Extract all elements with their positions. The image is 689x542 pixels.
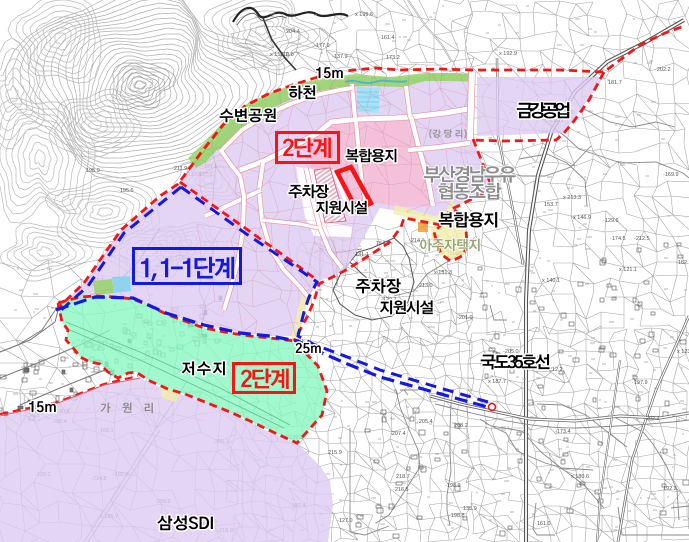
svg-text:-137.9: -137.9: [332, 54, 348, 60]
svg-text:x 180.6: x 180.6: [571, 474, 589, 480]
svg-text:135.9: 135.9: [463, 506, 477, 512]
svg-text:·216.5: ·216.5: [393, 487, 409, 493]
svg-text:x 199.6: x 199.6: [355, 12, 373, 18]
svg-text:x 187.7: x 187.7: [488, 379, 506, 385]
svg-text:x 146.9: x 146.9: [573, 215, 591, 221]
svg-text:-198.9: -198.9: [445, 483, 461, 489]
svg-text:·202.2: ·202.2: [644, 416, 660, 422]
svg-text:·162.2: ·162.2: [676, 260, 689, 266]
svg-text:-177.0: -177.0: [314, 43, 330, 49]
svg-text:·197.9: ·197.9: [632, 380, 648, 386]
svg-text:x 140.1: x 140.1: [542, 278, 560, 284]
svg-text:195.9: 195.9: [86, 168, 100, 174]
svg-text:204.4: 204.4: [286, 29, 300, 35]
svg-text:215.9: 215.9: [328, 450, 342, 456]
svg-text:·173.4: ·173.4: [555, 429, 571, 435]
svg-text:x 192.9: x 192.9: [499, 51, 517, 57]
svg-text:·198.8: ·198.8: [449, 513, 465, 519]
svg-text:x 121.1: x 121.1: [619, 267, 637, 273]
svg-text:-201.0: -201.0: [457, 315, 473, 321]
svg-text:192.2: 192.2: [663, 486, 677, 492]
svg-text:208.2: 208.2: [454, 423, 468, 429]
svg-text:-207.4: -207.4: [390, 431, 406, 437]
svg-text:·129.6: ·129.6: [603, 218, 619, 224]
svg-text:·161.0: ·161.0: [535, 521, 551, 527]
svg-text:218.7: 218.7: [396, 474, 410, 480]
svg-text:·211.9: ·211.9: [172, 166, 187, 172]
svg-text:181.7: 181.7: [608, 80, 622, 86]
svg-text:x 159.7: x 159.7: [270, 52, 288, 58]
svg-text:·195.6: ·195.6: [118, 188, 134, 194]
svg-text:x 123.7: x 123.7: [677, 349, 689, 355]
svg-text:x 213.3: x 213.3: [563, 195, 581, 201]
svg-text:·213.0: ·213.0: [417, 283, 433, 289]
svg-text:·212.5: ·212.5: [634, 236, 650, 242]
svg-text:173.2: 173.2: [386, 55, 400, 61]
svg-text:·202.2: ·202.2: [655, 67, 671, 73]
svg-text:·169.9: ·169.9: [663, 172, 679, 178]
svg-text:·174.5: ·174.5: [610, 236, 626, 242]
svg-text:-127.0: -127.0: [337, 518, 353, 524]
svg-text:153.7: 153.7: [544, 202, 558, 208]
svg-text:·161.4: ·161.4: [379, 35, 395, 41]
